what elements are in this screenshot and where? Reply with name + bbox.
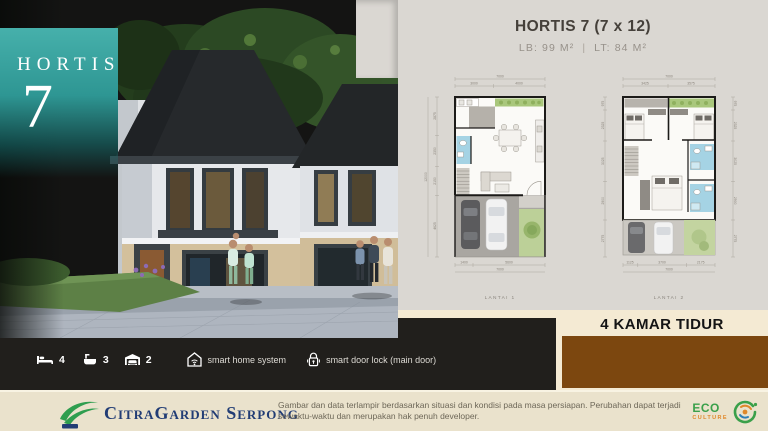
badge-number: 7 [22,78,118,137]
svg-text:3425: 3425 [641,82,649,86]
svg-text:2325: 2325 [601,122,605,130]
garage-icon [124,353,141,366]
svg-text:2900: 2900 [601,197,605,205]
smart-home-feature: smart home system [186,352,287,367]
svg-text:2150: 2150 [433,177,437,185]
bed-icon [36,353,54,366]
svg-text:2325: 2325 [733,122,737,130]
svg-text:4625: 4625 [433,222,437,230]
eco-word: ECO [692,402,720,414]
bathtub-icon [82,353,98,366]
bath-feature: 3 [82,353,109,366]
svg-text:2350: 2350 [433,147,437,155]
svg-text:7000: 7000 [665,268,673,272]
svg-text:3700: 3700 [658,261,666,265]
smart-lock-icon [306,352,321,367]
plan1-label: LANTAI 1 [485,295,516,301]
garage-count: 2 [146,354,152,366]
svg-text:1125: 1125 [626,261,633,265]
smart-lock-feature: smart door lock (main door) [306,352,436,367]
bed-feature: 4 [36,353,65,366]
building-area: LB: 99 M² [519,42,574,54]
brochure-page: 4 KAMAR TIDUR 4 3 2 [0,0,768,431]
svg-text:7000: 7000 [496,75,504,79]
garage-feature: 2 [124,353,152,366]
house-photo: HORTIS 7 [0,0,398,338]
smart-lock-label: smart door lock (main door) [326,355,436,365]
svg-text:5600: 5600 [505,261,513,265]
smart-home-icon [186,352,203,367]
footer: CitraGarden Serpong Gambar dan data terl… [0,390,768,431]
citragarden-logo-icon [56,397,102,429]
bedroom-count-banner: 4 KAMAR TIDUR [556,313,768,336]
svg-text:2875: 2875 [433,112,437,120]
floorplan-lantai-2: 7000 3425 3575 975 2325 3025 2900 2775 9… [592,72,747,307]
feature-icons-row: 4 3 2 [36,352,436,367]
eco-culture-logo: ECO CULTURE [692,399,758,425]
svg-text:2775: 2775 [601,235,605,243]
unit-title: HORTIS 7 (7 x 12) [398,18,768,36]
eco-culture-icon [732,399,758,425]
smart-home-label: smart home system [208,355,287,365]
bath-count: 3 [103,354,109,366]
svg-text:3025: 3025 [601,157,605,165]
floorplan-lantai-1: 7000 3000 4000 12000 2875 2350 2150 4625… [423,72,558,307]
disclaimer-text: Gambar dan data terlampir berdasarkan si… [278,400,698,422]
svg-text:3000: 3000 [470,82,478,86]
area-divider: | [574,42,594,54]
svg-text:3575: 3575 [687,82,695,86]
svg-text:2900: 2900 [733,197,737,205]
brand-name: CitraGarden Serpong [104,403,299,424]
bed-count: 4 [59,354,65,366]
svg-text:975: 975 [601,101,605,107]
upper-windows [166,168,268,232]
brown-accent-block [562,336,768,388]
svg-text:7000: 7000 [665,75,673,79]
unit-areas: LB: 99 M²|LT: 84 M² [398,42,768,54]
svg-text:7000: 7000 [496,268,504,272]
svg-text:975: 975 [733,101,737,107]
svg-text:3025: 3025 [733,157,737,165]
panel-header: HORTIS 7 (7 x 12) LB: 99 M²|LT: 84 M² [398,18,768,54]
svg-text:4000: 4000 [515,82,523,86]
svg-text:1400: 1400 [460,261,468,265]
svg-text:2775: 2775 [733,235,737,243]
plan2-label: LANTAI 2 [654,295,685,301]
land-area: LT: 84 M² [594,42,647,54]
svg-text:2175: 2175 [697,261,705,265]
photo-corner-notch [356,0,398,78]
culture-word: CULTURE [692,416,728,422]
svg-text:12000: 12000 [424,172,428,182]
hortis-badge: HORTIS 7 [0,28,118,178]
